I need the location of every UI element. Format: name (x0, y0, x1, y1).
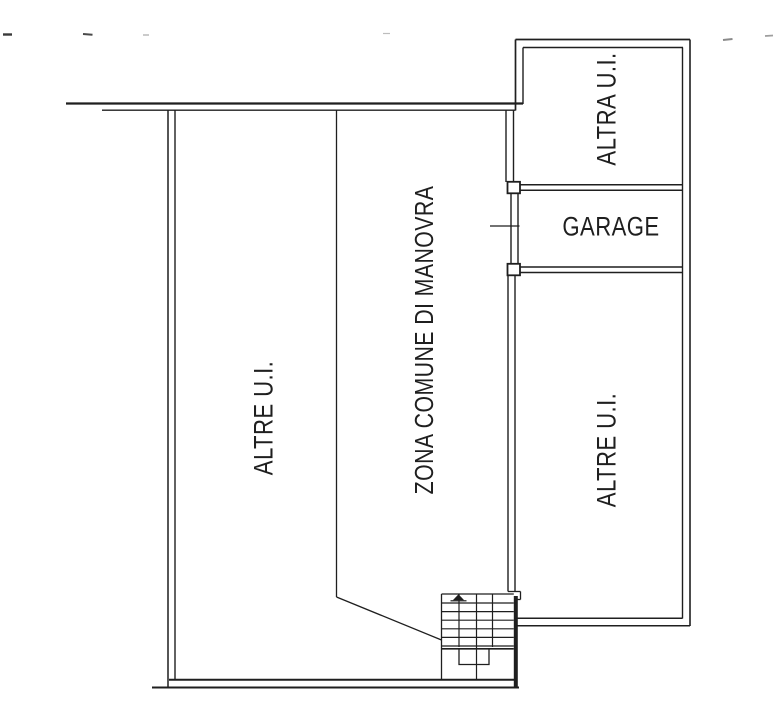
left-wall (168, 110, 175, 687)
floorplan-page: ALTRE U.I. ZONA COMUNE DI MANOVRA ALTRA … (0, 0, 779, 725)
right-wall (683, 40, 691, 627)
top-left-wall (66, 104, 523, 111)
room-label-upper-right-unit: ALTRA U.I. (594, 52, 621, 165)
stairs-steps (442, 594, 514, 680)
room-label-lower-right-unit: ALTRE U.I. (593, 393, 620, 507)
garage-divider-bottom (520, 267, 683, 273)
room-label-left-unit: ALTRE U.I. (250, 360, 277, 474)
stairs-landing-box (459, 649, 489, 665)
door-jamb-bottom (508, 264, 521, 276)
staircase (442, 592, 521, 688)
garage-door (490, 182, 520, 275)
room-label-maneuver-zone: ZONA COMUNE DI MANOVRA (411, 186, 437, 495)
bottom-wall (152, 680, 519, 688)
lower-right-unit-bottom-wall (517, 618, 690, 626)
stairs-direction-arrow-icon (451, 594, 467, 601)
room-label-garage: GARAGE (562, 214, 659, 241)
door-jamb-top (508, 182, 521, 194)
stairwell-right-wall (514, 596, 518, 688)
floorplan-drawing (0, 0, 779, 725)
diagonal-wall (337, 597, 442, 640)
garage-divider-top (520, 185, 683, 191)
